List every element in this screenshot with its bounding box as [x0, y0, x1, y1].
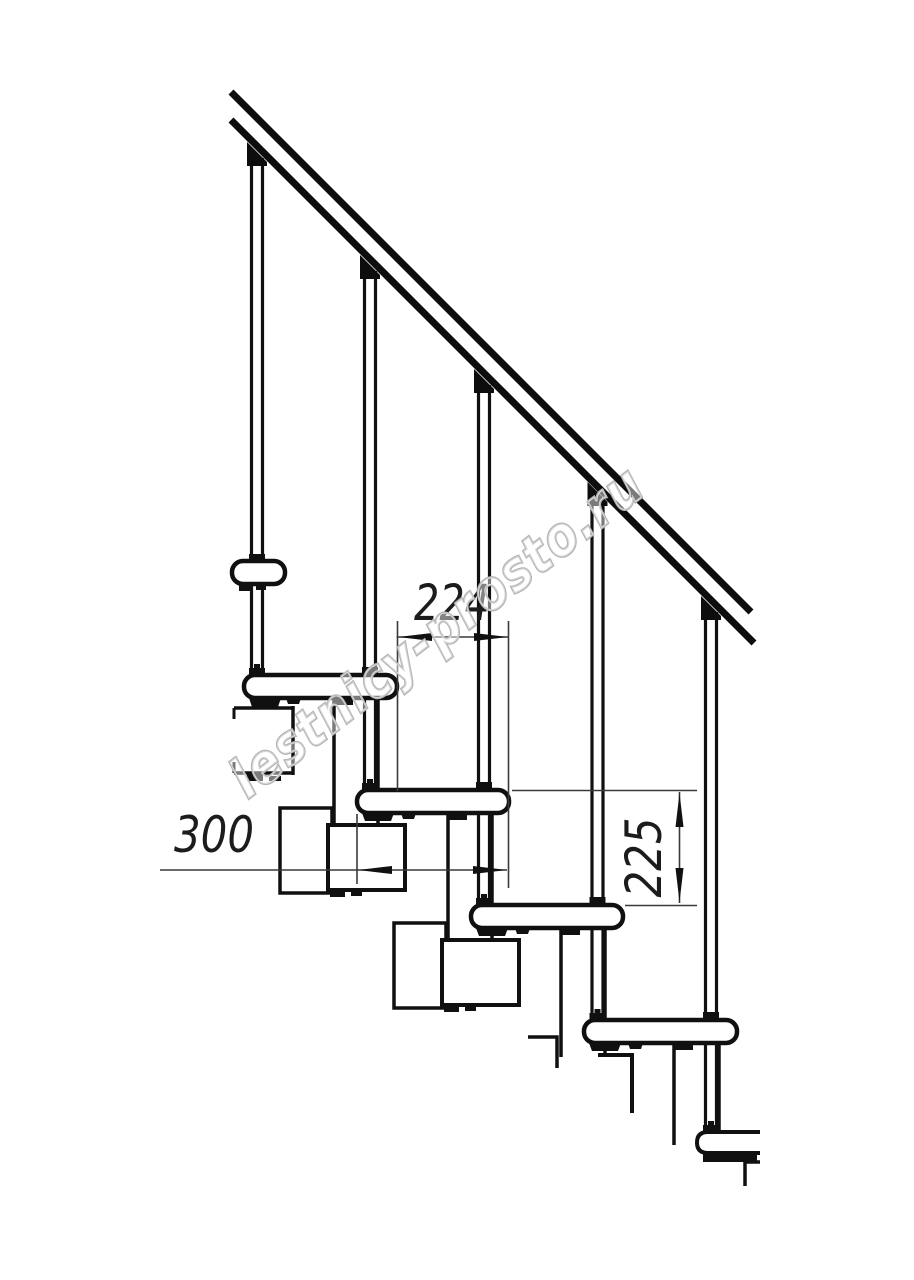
baluster-3	[479, 385, 490, 911]
support-box-2	[328, 825, 405, 890]
rise-dimension-label: 225	[615, 818, 673, 898]
watermark-text: lestnicy-prosto.ru	[217, 453, 656, 810]
tread-5-partial	[697, 1132, 760, 1153]
tread-2	[357, 790, 509, 813]
support-wing-3	[394, 923, 446, 1008]
support-wing-4	[528, 1037, 557, 1068]
support-spine	[234, 697, 760, 1186]
support-box-3	[442, 940, 519, 1005]
platform-edge	[232, 561, 285, 584]
tread-4	[584, 1020, 737, 1043]
support-wing-2	[280, 808, 332, 893]
baluster-5	[706, 612, 717, 1138]
support-box-5	[745, 1162, 760, 1186]
tread-length-dimension-label: 300	[174, 806, 254, 864]
baluster-1	[252, 158, 263, 681]
tread-3	[471, 905, 623, 928]
staircase-drawing: 224 300 225 lestnicy-prosto.ru	[0, 0, 914, 1280]
baluster-4	[592, 498, 603, 1026]
support-box-4	[598, 1055, 632, 1113]
baluster-rail-wedges	[247, 142, 721, 620]
drawing-canvas: 224 300 225 lestnicy-prosto.ru	[0, 0, 914, 1280]
